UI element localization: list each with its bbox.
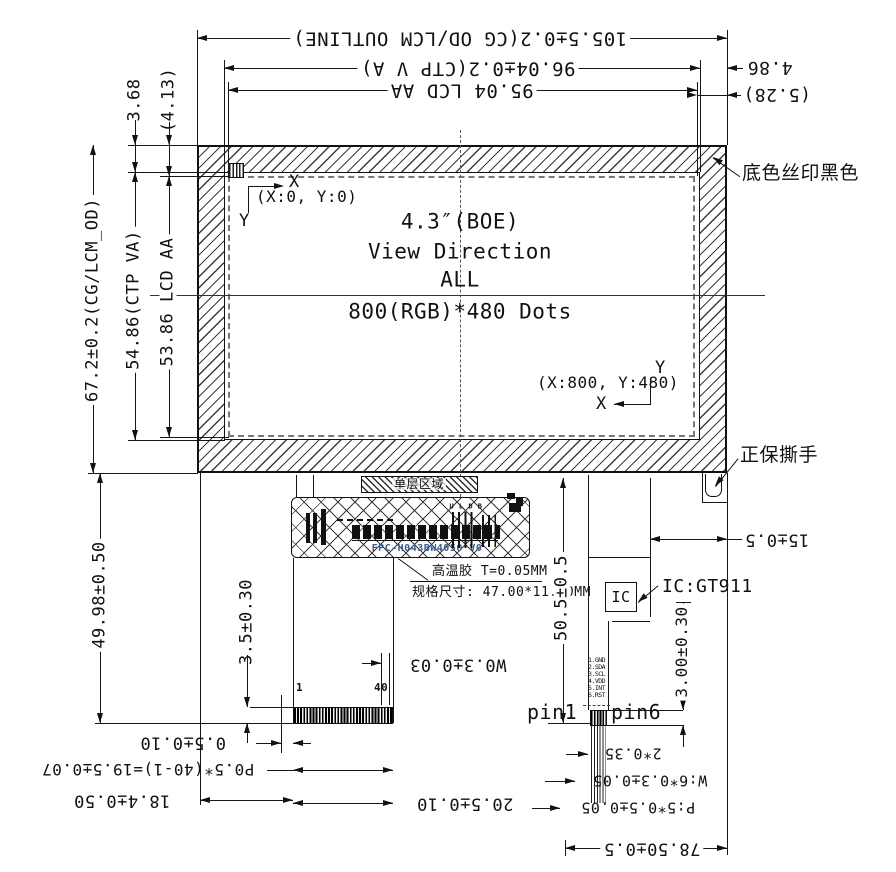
tear-handle-label: 正保撕手 xyxy=(740,446,818,465)
horizontal-centerline xyxy=(150,295,765,296)
dim-arrow-icon xyxy=(687,92,697,98)
ext-line xyxy=(607,710,683,711)
dim-touch-pin-margin: 2*0.35 xyxy=(604,746,661,761)
dim-arrow-icon xyxy=(97,473,103,483)
tail-outline xyxy=(612,621,650,622)
dim-ctp-va-width: 96.04±0.2(CTP V A) xyxy=(358,59,579,78)
resolution-label: 800(RGB)*480 Dots xyxy=(348,302,571,323)
dim-arrow-icon xyxy=(371,660,381,666)
fpc-component-decor xyxy=(306,513,310,543)
dim-arrow-icon xyxy=(244,697,250,707)
dim-tail-drop: 50.5±0.5 xyxy=(554,552,571,644)
tail-outline xyxy=(650,478,651,617)
dim-outline-width: 105.5±0.2(CG OD/LCM OUTLINE) xyxy=(290,29,630,48)
dim-line xyxy=(200,800,293,801)
ext-line xyxy=(160,437,229,438)
dim-arrow-icon xyxy=(200,797,210,803)
dim-edge-gap: 4.86 xyxy=(747,58,792,76)
tab-outline xyxy=(702,473,703,502)
dim-arrow-icon xyxy=(650,536,660,542)
dim-arrow-icon xyxy=(293,800,303,806)
dim-arrow-icon xyxy=(97,713,103,723)
fpc-stamp-decor xyxy=(509,503,521,512)
dim-arrow-icon xyxy=(383,800,393,806)
leader-underline xyxy=(410,581,542,582)
dim-arrow-icon xyxy=(283,797,293,803)
ext-line xyxy=(88,473,198,474)
fold-dash-line xyxy=(583,705,610,706)
fpc-component-decor xyxy=(482,515,496,547)
fpc-component-decor xyxy=(452,512,474,548)
ext-line xyxy=(197,30,198,145)
dim-line xyxy=(690,68,700,69)
dim-line xyxy=(650,539,727,540)
dim-line xyxy=(697,95,727,96)
ext-line xyxy=(250,707,293,708)
fpc-dash-decor xyxy=(337,519,393,521)
dim-arrow-icon xyxy=(132,162,138,172)
dim-arrow-icon xyxy=(166,427,172,437)
dim-arrow-icon xyxy=(560,713,566,723)
dim-arrow-icon xyxy=(244,723,250,733)
dim-arrow-icon xyxy=(680,700,686,710)
dim-lcd-aa-width: 95.04 LCD AA xyxy=(387,81,536,100)
dim-arrow-icon xyxy=(132,430,138,440)
ext-line xyxy=(700,60,701,172)
dim-arrow-icon xyxy=(166,166,172,176)
axis-y-label: Y xyxy=(239,213,250,230)
dim-arrow-icon xyxy=(228,87,238,93)
dim-ctp-va-height: 54.86(CTP VA) xyxy=(126,227,143,373)
ext-line xyxy=(95,723,293,724)
dim-arrow-icon xyxy=(717,845,727,851)
dim-pin-width: W0.3±0.03 xyxy=(410,656,507,673)
tail-outline xyxy=(608,621,609,710)
dim-edge-gap-ref: (5.28) xyxy=(743,85,811,103)
silkscreen-label: 底色丝印黑色 xyxy=(742,164,859,183)
lcd-module-drawing: 4.3″(BOE) View Direction ALL 800(RGB)*48… xyxy=(0,0,896,872)
dim-line xyxy=(727,95,741,96)
axis-arrow-left-icon xyxy=(614,401,624,407)
dim-arrow-icon xyxy=(565,778,575,784)
touch-ic-label: IC:GT911 xyxy=(662,578,753,596)
dim-arrow-icon xyxy=(727,65,737,71)
ext-line xyxy=(548,723,590,724)
dim-conn-width: 20.5±0.10 xyxy=(417,795,514,812)
fpc-tongue-edge xyxy=(393,558,394,723)
view-direction-label: View Direction xyxy=(368,242,552,263)
dim-top-gap: 3.68 xyxy=(127,79,144,122)
dim-arrow-icon xyxy=(293,767,303,773)
dim-arrow-icon xyxy=(560,478,566,488)
dim-arrow-icon xyxy=(717,35,727,41)
dim-arrow-icon xyxy=(550,805,560,811)
dim-touch-pin-width: W:6*0.3±0.05 xyxy=(593,773,707,788)
axis-line xyxy=(248,186,249,213)
dim-tail-total: 78.50±0.5 xyxy=(601,840,704,857)
ext-line xyxy=(224,60,225,172)
dim-fpc-drop: 49.98±0.50 xyxy=(92,538,109,651)
axis-x-label: X xyxy=(596,396,607,413)
ext-line xyxy=(128,172,225,173)
dim-tail-inset: 15±0.5 xyxy=(742,531,812,548)
origin-coordinate: (X:0, Y:0) xyxy=(256,189,357,205)
dim-arrow-icon xyxy=(293,740,303,746)
dim-line xyxy=(293,803,393,804)
first-pixel-icon xyxy=(228,163,244,178)
ext-line xyxy=(727,473,728,855)
fpc-tongue-edge xyxy=(293,558,294,723)
ext-line xyxy=(228,82,229,176)
leader-line xyxy=(398,558,429,581)
display-size-label: 4.3″(BOE) xyxy=(401,212,519,233)
view-direction-value: ALL xyxy=(440,270,479,291)
touch-pin-tails xyxy=(591,726,606,803)
ext-line xyxy=(128,440,225,441)
dim-arrow-icon xyxy=(90,463,96,473)
adhesive-label: 高温胶 T=0.05MM xyxy=(432,565,547,578)
dim-touch-pin-pitch: P:5*0.5±0.05 xyxy=(581,800,695,815)
dim-arrow-icon xyxy=(166,135,172,145)
dim-stiffener-depth: 3.5±0.30 xyxy=(239,579,256,665)
ext-line xyxy=(607,725,683,726)
ext-line xyxy=(727,30,728,145)
touch-ic-box: IC xyxy=(605,582,637,612)
ext-line xyxy=(128,145,198,146)
ext-line xyxy=(381,653,382,705)
touch-6pin-contact-strip xyxy=(590,710,607,726)
dim-pin-edge: 0.5±0.10 xyxy=(140,734,226,751)
single-layer-zone-label: 单层区域 xyxy=(392,478,446,490)
ext-line xyxy=(200,473,201,805)
tab-outline xyxy=(702,502,727,503)
outline-line xyxy=(313,475,314,497)
dim-conn-offset: 18.4±0.50 xyxy=(74,792,171,809)
dim-arrow-icon xyxy=(383,767,393,773)
pin1-label: pin1 xyxy=(527,702,577,722)
dim-touch-pin-len: 3.00±0.30 xyxy=(674,603,690,700)
dim-arrow-icon xyxy=(166,176,172,186)
dim-arrow-icon xyxy=(132,172,138,182)
ext-line xyxy=(281,695,282,753)
pin-label: 6.RST xyxy=(588,691,605,699)
fpc-component-decor xyxy=(313,513,317,543)
fpc-marking-underline xyxy=(352,540,498,541)
fpc-stamp-decor xyxy=(507,493,515,499)
dim-arrow-icon xyxy=(197,35,207,41)
tail-boundary xyxy=(588,557,650,558)
dim-arrow-icon xyxy=(680,725,686,735)
outline-line xyxy=(296,475,297,497)
fpc-component-decor xyxy=(321,509,326,545)
dim-arrow-icon xyxy=(132,135,138,145)
fpc-40pin-contact-strip xyxy=(293,707,393,724)
pin6-label: pin6 xyxy=(611,702,661,722)
fpc-marking-decor xyxy=(352,525,500,539)
dim-outline-height: 67.2±0.2(CG/LCM_OD) xyxy=(85,195,102,405)
dim-arrow-icon xyxy=(565,845,575,851)
dim-lcd-aa-height: 53.86 LCD AA xyxy=(160,235,177,370)
dim-arrow-icon xyxy=(578,751,588,757)
fpc-component-marks: U L D B xyxy=(449,504,482,511)
dim-line xyxy=(267,770,393,771)
dim-pin-pitch: P0.5*(40-1)=19.5±0.07 xyxy=(42,761,255,777)
ext-line xyxy=(389,653,390,705)
axis-line xyxy=(650,381,651,404)
dim-arrow-icon xyxy=(224,65,234,71)
touch-ic-box-label: IC xyxy=(611,590,630,605)
dim-arrow-icon xyxy=(90,145,96,155)
axis-y-label: Y xyxy=(655,360,666,377)
dim-arrow-icon xyxy=(271,740,281,746)
pin-first-label: 1 xyxy=(296,682,303,693)
dim-arrow-icon xyxy=(717,536,727,542)
